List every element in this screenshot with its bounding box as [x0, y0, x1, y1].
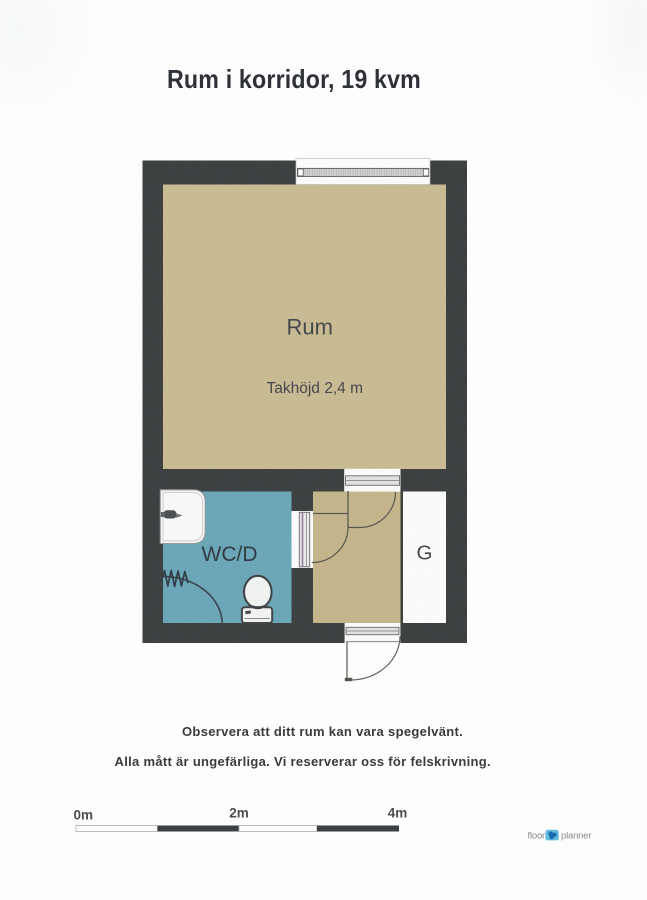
- svg-text:0m: 0m: [74, 808, 94, 823]
- svg-text:planner: planner: [561, 830, 591, 841]
- svg-text:floor: floor: [528, 830, 546, 841]
- svg-text:2m: 2m: [229, 806, 249, 821]
- svg-text:4m: 4m: [388, 806, 408, 821]
